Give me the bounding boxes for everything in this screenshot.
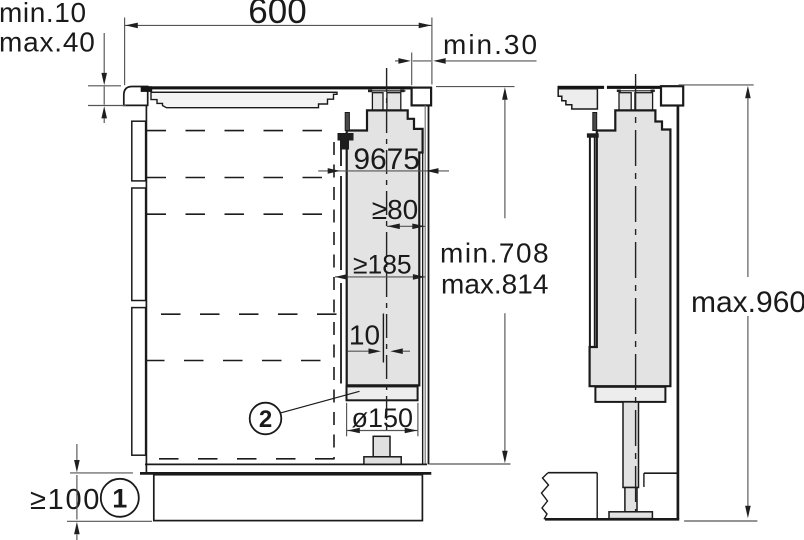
svg-text:min.708: min.708	[440, 237, 550, 268]
svg-text:min.30: min.30	[443, 29, 539, 60]
svg-text:2: 2	[259, 406, 272, 433]
svg-text:max.40: max.40	[0, 26, 96, 57]
svg-text:min.10: min.10	[0, 0, 87, 28]
svg-text:ø150: ø150	[352, 403, 414, 433]
svg-text:600: 600	[248, 0, 306, 31]
svg-text:≥185: ≥185	[353, 249, 412, 279]
svg-text:max.814: max.814	[441, 269, 548, 300]
svg-text:≥80: ≥80	[372, 194, 419, 225]
svg-text:max.960: max.960	[691, 286, 804, 319]
svg-text:1: 1	[112, 484, 127, 514]
svg-text:10: 10	[349, 320, 380, 351]
svg-text:96: 96	[353, 143, 386, 176]
svg-text:75: 75	[387, 143, 420, 176]
svg-text:≥100: ≥100	[30, 484, 101, 516]
